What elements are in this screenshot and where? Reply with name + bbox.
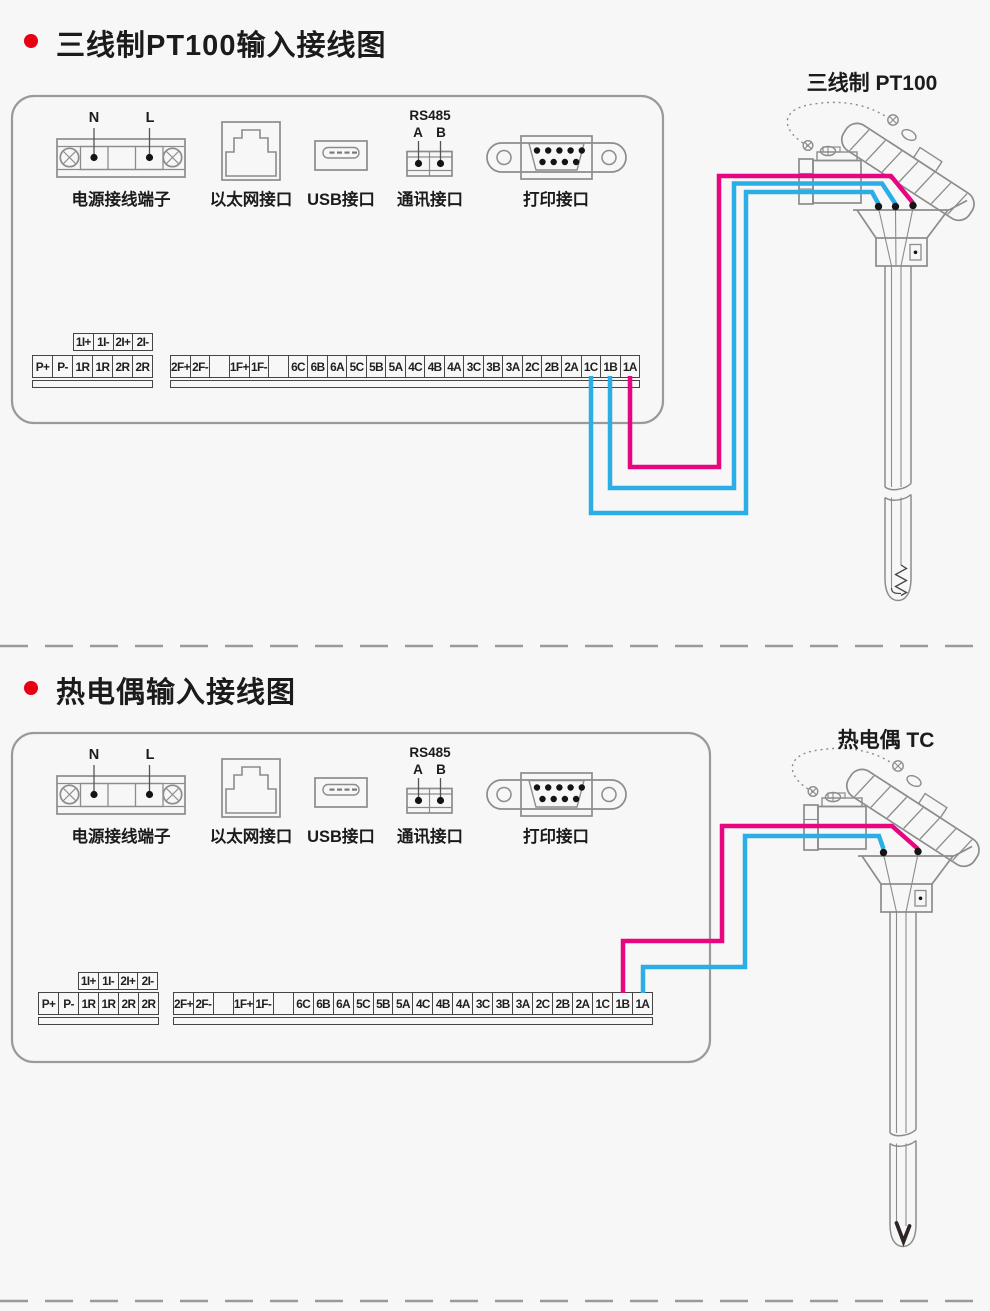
terminal-cell: 5B xyxy=(373,993,393,1014)
usb-port-caption: USB接口 xyxy=(307,186,375,210)
rs485-label: RS485 xyxy=(409,108,450,123)
ethernet-port-caption: 以太网接口 xyxy=(210,186,293,210)
terminal-cell: P+ xyxy=(39,993,58,1014)
terminal-cell: 5A xyxy=(392,993,412,1014)
rs485-comm-port-icon xyxy=(407,141,452,176)
pt100-probe-illustration xyxy=(787,102,985,600)
terminal-cell: 2I- xyxy=(132,334,152,350)
terminal-cell: 4C xyxy=(405,356,425,377)
terminal-cell: 1I- xyxy=(98,973,118,989)
terminal-cell: 6B xyxy=(313,993,333,1014)
terminal-cell: 1I+ xyxy=(79,973,98,989)
terminal-cell: 2C xyxy=(532,993,552,1014)
terminal-cell: 3C xyxy=(463,356,483,377)
signal-wire-cyan xyxy=(643,836,884,993)
signal-wire-magenta xyxy=(623,826,918,993)
terminal-cell: 2F- xyxy=(193,993,213,1014)
power-port-caption: 电源接线端子 xyxy=(72,823,171,847)
terminal-cell: 3A xyxy=(502,356,522,377)
ethernet-port-icon xyxy=(222,759,280,817)
ethernet-port-icon xyxy=(222,122,280,180)
terminal-cell: 4B xyxy=(432,993,452,1014)
comm-pin-label-a: A xyxy=(413,125,423,140)
terminal-cell: 5A xyxy=(385,356,405,377)
power-terminal-icon xyxy=(57,128,185,177)
terminal-cell: 3A xyxy=(512,993,532,1014)
terminal-strip-bar xyxy=(38,1017,159,1025)
terminal-cell: 1F- xyxy=(253,993,273,1014)
terminal-cell: 2I+ xyxy=(113,334,133,350)
terminal-cell: 1F+ xyxy=(233,993,253,1014)
terminal-strip-left: P+P-1R1R2R2R xyxy=(38,992,159,1015)
power-pin-label-n: N xyxy=(89,747,99,763)
terminal-cell: 1B xyxy=(600,356,620,377)
power-port-caption: 电源接线端子 xyxy=(72,186,171,210)
terminal-cell: 2R xyxy=(132,356,152,377)
terminal-cell: 1C xyxy=(592,993,612,1014)
terminal-cell: 3C xyxy=(472,993,492,1014)
signal-wire-cyan xyxy=(591,192,879,513)
terminal-cell: 1F- xyxy=(249,356,269,377)
terminal-cell: 6C xyxy=(293,993,313,1014)
terminal-cell: 1R xyxy=(92,356,112,377)
terminal-strip-bar xyxy=(170,380,640,388)
terminal-strip-main: 2F+2F-1F+1F-6C6B6A5C5B5A4C4B4A3C3B3A2C2B… xyxy=(170,355,640,378)
power-pin-label-l: L xyxy=(146,110,155,126)
terminal-cell: 1R xyxy=(78,993,98,1014)
terminal-cell: 2R xyxy=(138,993,158,1014)
terminal-cell: 4B xyxy=(424,356,444,377)
terminal-cell: 1F+ xyxy=(229,356,249,377)
printer-port-icon xyxy=(487,773,626,816)
terminal-cell xyxy=(273,993,293,1014)
terminal-cell: 5C xyxy=(353,993,373,1014)
terminal-strip-main: 2F+2F-1F+1F-6C6B6A5C5B5A4C4B4A3C3B3A2C2B… xyxy=(173,992,653,1015)
printer-port-caption: 打印接口 xyxy=(523,186,589,210)
rs485-comm-port-icon xyxy=(407,778,452,813)
terminal-cell: 4A xyxy=(452,993,472,1014)
terminal-strip-bar xyxy=(173,1017,653,1025)
terminal-cell: 1A xyxy=(620,356,640,377)
terminal-strip-left: P+P-1R1R2R2R xyxy=(32,355,153,378)
terminal-cell: 2A xyxy=(561,356,581,377)
section-title-tc: 热电偶输入接线图 xyxy=(56,669,296,711)
signal-wire-cyan xyxy=(610,184,896,489)
terminal-cell: P- xyxy=(58,993,78,1014)
wiring-diagram-page: { "colors": { "bullet_red": "#e60012", "… xyxy=(0,0,990,1311)
terminal-strip-aux: 1I+1I-2I+2I- xyxy=(78,972,158,990)
terminal-cell xyxy=(213,993,233,1014)
terminal-cell xyxy=(209,356,229,377)
comm-port-caption: 通讯接口 xyxy=(397,823,463,847)
usb-port-icon xyxy=(315,141,367,170)
terminal-cell: 2A xyxy=(572,993,592,1014)
power-pin-label-l: L xyxy=(146,747,155,763)
terminal-cell: 1I+ xyxy=(74,334,93,350)
terminal-cell: 6C xyxy=(288,356,308,377)
terminal-cell: 1A xyxy=(632,993,652,1014)
power-terminal-icon xyxy=(57,765,185,814)
comm-pin-label-b: B xyxy=(436,762,446,777)
terminal-cell xyxy=(268,356,288,377)
terminal-strip-bar xyxy=(32,380,153,388)
terminal-cell: 2C xyxy=(522,356,542,377)
terminal-cell: 5C xyxy=(346,356,366,377)
terminal-cell: 3B xyxy=(492,993,512,1014)
usb-port-icon xyxy=(315,778,367,807)
terminal-cell: 2I+ xyxy=(118,973,138,989)
terminal-cell: 1C xyxy=(581,356,601,377)
terminal-cell: 2B xyxy=(541,356,561,377)
terminal-cell: 1R xyxy=(98,993,118,1014)
terminal-cell: 4A xyxy=(444,356,464,377)
probe-label-tc: 热电偶 TC xyxy=(838,724,935,754)
usb-port-caption: USB接口 xyxy=(307,823,375,847)
terminal-cell: 4C xyxy=(412,993,432,1014)
terminal-strip-aux: 1I+1I-2I+2I- xyxy=(73,333,153,351)
terminal-cell: P+ xyxy=(33,356,52,377)
terminal-cell: 5B xyxy=(366,356,386,377)
terminal-cell: 2R xyxy=(118,993,138,1014)
ethernet-port-caption: 以太网接口 xyxy=(210,823,293,847)
terminal-cell: 6A xyxy=(333,993,353,1014)
terminal-cell: 2F+ xyxy=(171,356,190,377)
section-bullet-icon xyxy=(24,681,38,695)
terminal-cell: 1I- xyxy=(93,334,113,350)
terminal-cell: 2I- xyxy=(137,973,157,989)
power-pin-label-n: N xyxy=(89,110,99,126)
comm-pin-label-a: A xyxy=(413,762,423,777)
printer-port-icon xyxy=(487,136,626,179)
terminal-cell: 6A xyxy=(327,356,347,377)
terminal-cell: 6B xyxy=(307,356,327,377)
terminal-cell: 1R xyxy=(72,356,92,377)
printer-port-caption: 打印接口 xyxy=(523,823,589,847)
section-bullet-icon xyxy=(24,34,38,48)
terminal-cell: 2R xyxy=(112,356,132,377)
terminal-cell: 3B xyxy=(483,356,503,377)
probe-label-pt100: 三线制 PT100 xyxy=(807,67,938,97)
comm-pin-label-b: B xyxy=(436,125,446,140)
comm-port-caption: 通讯接口 xyxy=(397,186,463,210)
terminal-cell: 1B xyxy=(612,993,632,1014)
thermocouple-probe-illustration xyxy=(792,748,990,1246)
section-title-pt100: 三线制PT100输入接线图 xyxy=(56,22,386,64)
rs485-label: RS485 xyxy=(409,745,450,760)
terminal-cell: 2B xyxy=(552,993,572,1014)
signal-wire-magenta xyxy=(630,176,913,467)
terminal-cell: P- xyxy=(52,356,72,377)
terminal-cell: 2F- xyxy=(190,356,210,377)
terminal-cell: 2F+ xyxy=(174,993,193,1014)
